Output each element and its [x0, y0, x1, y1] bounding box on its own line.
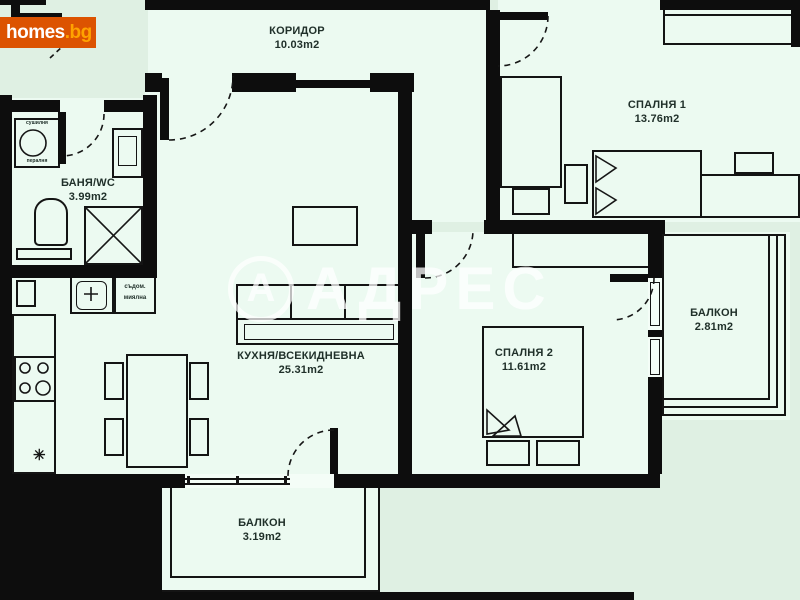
floor-plan: сушилня пералня съдом. миялна ✳ КОРИДОР …	[0, 0, 800, 600]
washer-drum-icon	[20, 130, 46, 156]
room-label-bedroom1: СПАЛНЯ 1 13.76m2	[628, 98, 686, 126]
pillow-icon	[596, 188, 616, 214]
room-label-corridor: КОРИДОР 10.03m2	[269, 24, 325, 52]
room-area: 11.61m2	[495, 360, 553, 374]
logo-text-secondary: .bg	[65, 22, 92, 44]
door-arc	[425, 230, 473, 278]
dishwasher-label-bottom: миялна	[115, 295, 155, 301]
room-label-bathroom: БАНЯ/WC 3.99m2	[61, 176, 115, 204]
room-label-bedroom2: СПАЛНЯ 2 11.61m2	[495, 346, 553, 374]
room-name: СПАЛНЯ 2	[495, 346, 553, 360]
room-area: 3.99m2	[61, 190, 115, 204]
door-arc	[62, 114, 104, 156]
door-arc	[612, 278, 654, 320]
room-label-kitchen-living: КУХНЯ/ВСЕКИДНЕВНА 25.31m2	[237, 349, 365, 377]
door-arc	[169, 76, 233, 140]
logo-text-primary: homes	[6, 22, 65, 44]
pillow-icon	[596, 156, 616, 182]
fridge-star-icon: ✳	[33, 446, 46, 464]
room-area: 3.19m2	[238, 530, 286, 544]
dishwasher-label-top: съдом.	[115, 284, 155, 290]
homes-bg-logo: homes.bg	[0, 17, 96, 48]
washer-label-bottom: пералня	[15, 158, 59, 164]
room-label-balcony-bottom: БАЛКОН 3.19m2	[238, 516, 286, 544]
stove-burner-icon	[20, 383, 30, 393]
door-arc	[498, 16, 548, 66]
room-area: 13.76m2	[628, 112, 686, 126]
room-name: БАЛКОН	[690, 306, 738, 320]
room-label-balcony-right: БАЛКОН 2.81m2	[690, 306, 738, 334]
room-area: 10.03m2	[269, 38, 325, 52]
room-area: 25.31m2	[237, 363, 365, 377]
room-name: БАНЯ/WC	[61, 176, 115, 190]
room-area: 2.81m2	[690, 320, 738, 334]
room-name: БАЛКОН	[238, 516, 286, 530]
shower-cross	[86, 208, 141, 263]
faucet-icon	[84, 287, 98, 301]
door-arc	[288, 430, 334, 476]
stove-burner-icon	[38, 363, 48, 373]
room-name: СПАЛНЯ 1	[628, 98, 686, 112]
stove-burner-icon	[36, 381, 50, 395]
room-name: КОРИДОР	[269, 24, 325, 38]
room-name: КУХНЯ/ВСЕКИДНЕВНА	[237, 349, 365, 363]
washer-label-top: сушилня	[15, 120, 59, 126]
stove-burner-icon	[20, 363, 30, 373]
